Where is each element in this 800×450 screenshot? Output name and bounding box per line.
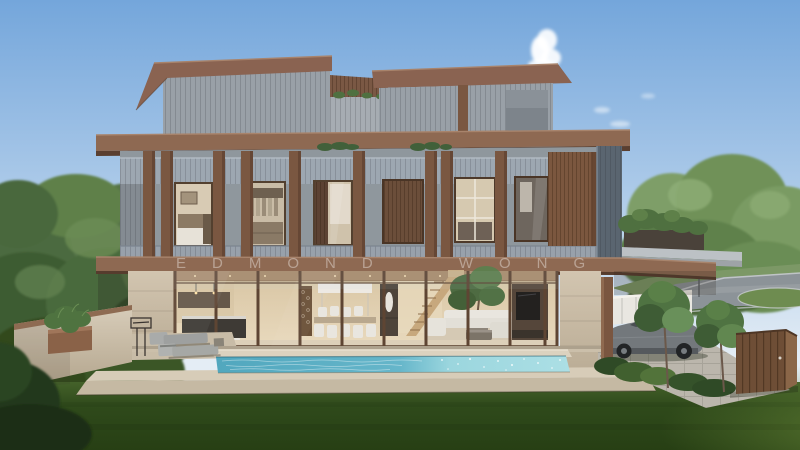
timber-gate — [730, 330, 798, 398]
window-bay-grid-window — [455, 178, 495, 242]
tv-wall — [512, 284, 548, 340]
roof-right-volume — [372, 64, 572, 141]
rendering-canvas: EDMOND WONG — [0, 0, 800, 450]
swimming-pool — [212, 350, 572, 373]
scene-rendering — [0, 0, 800, 450]
roof-left-volume — [136, 56, 332, 141]
window-bay-glass — [314, 181, 352, 245]
second-floor — [120, 142, 597, 260]
window-bay-bedroom — [175, 183, 212, 246]
window-bay-timber-door — [383, 180, 423, 243]
window-bay-dark-glass — [515, 177, 548, 241]
